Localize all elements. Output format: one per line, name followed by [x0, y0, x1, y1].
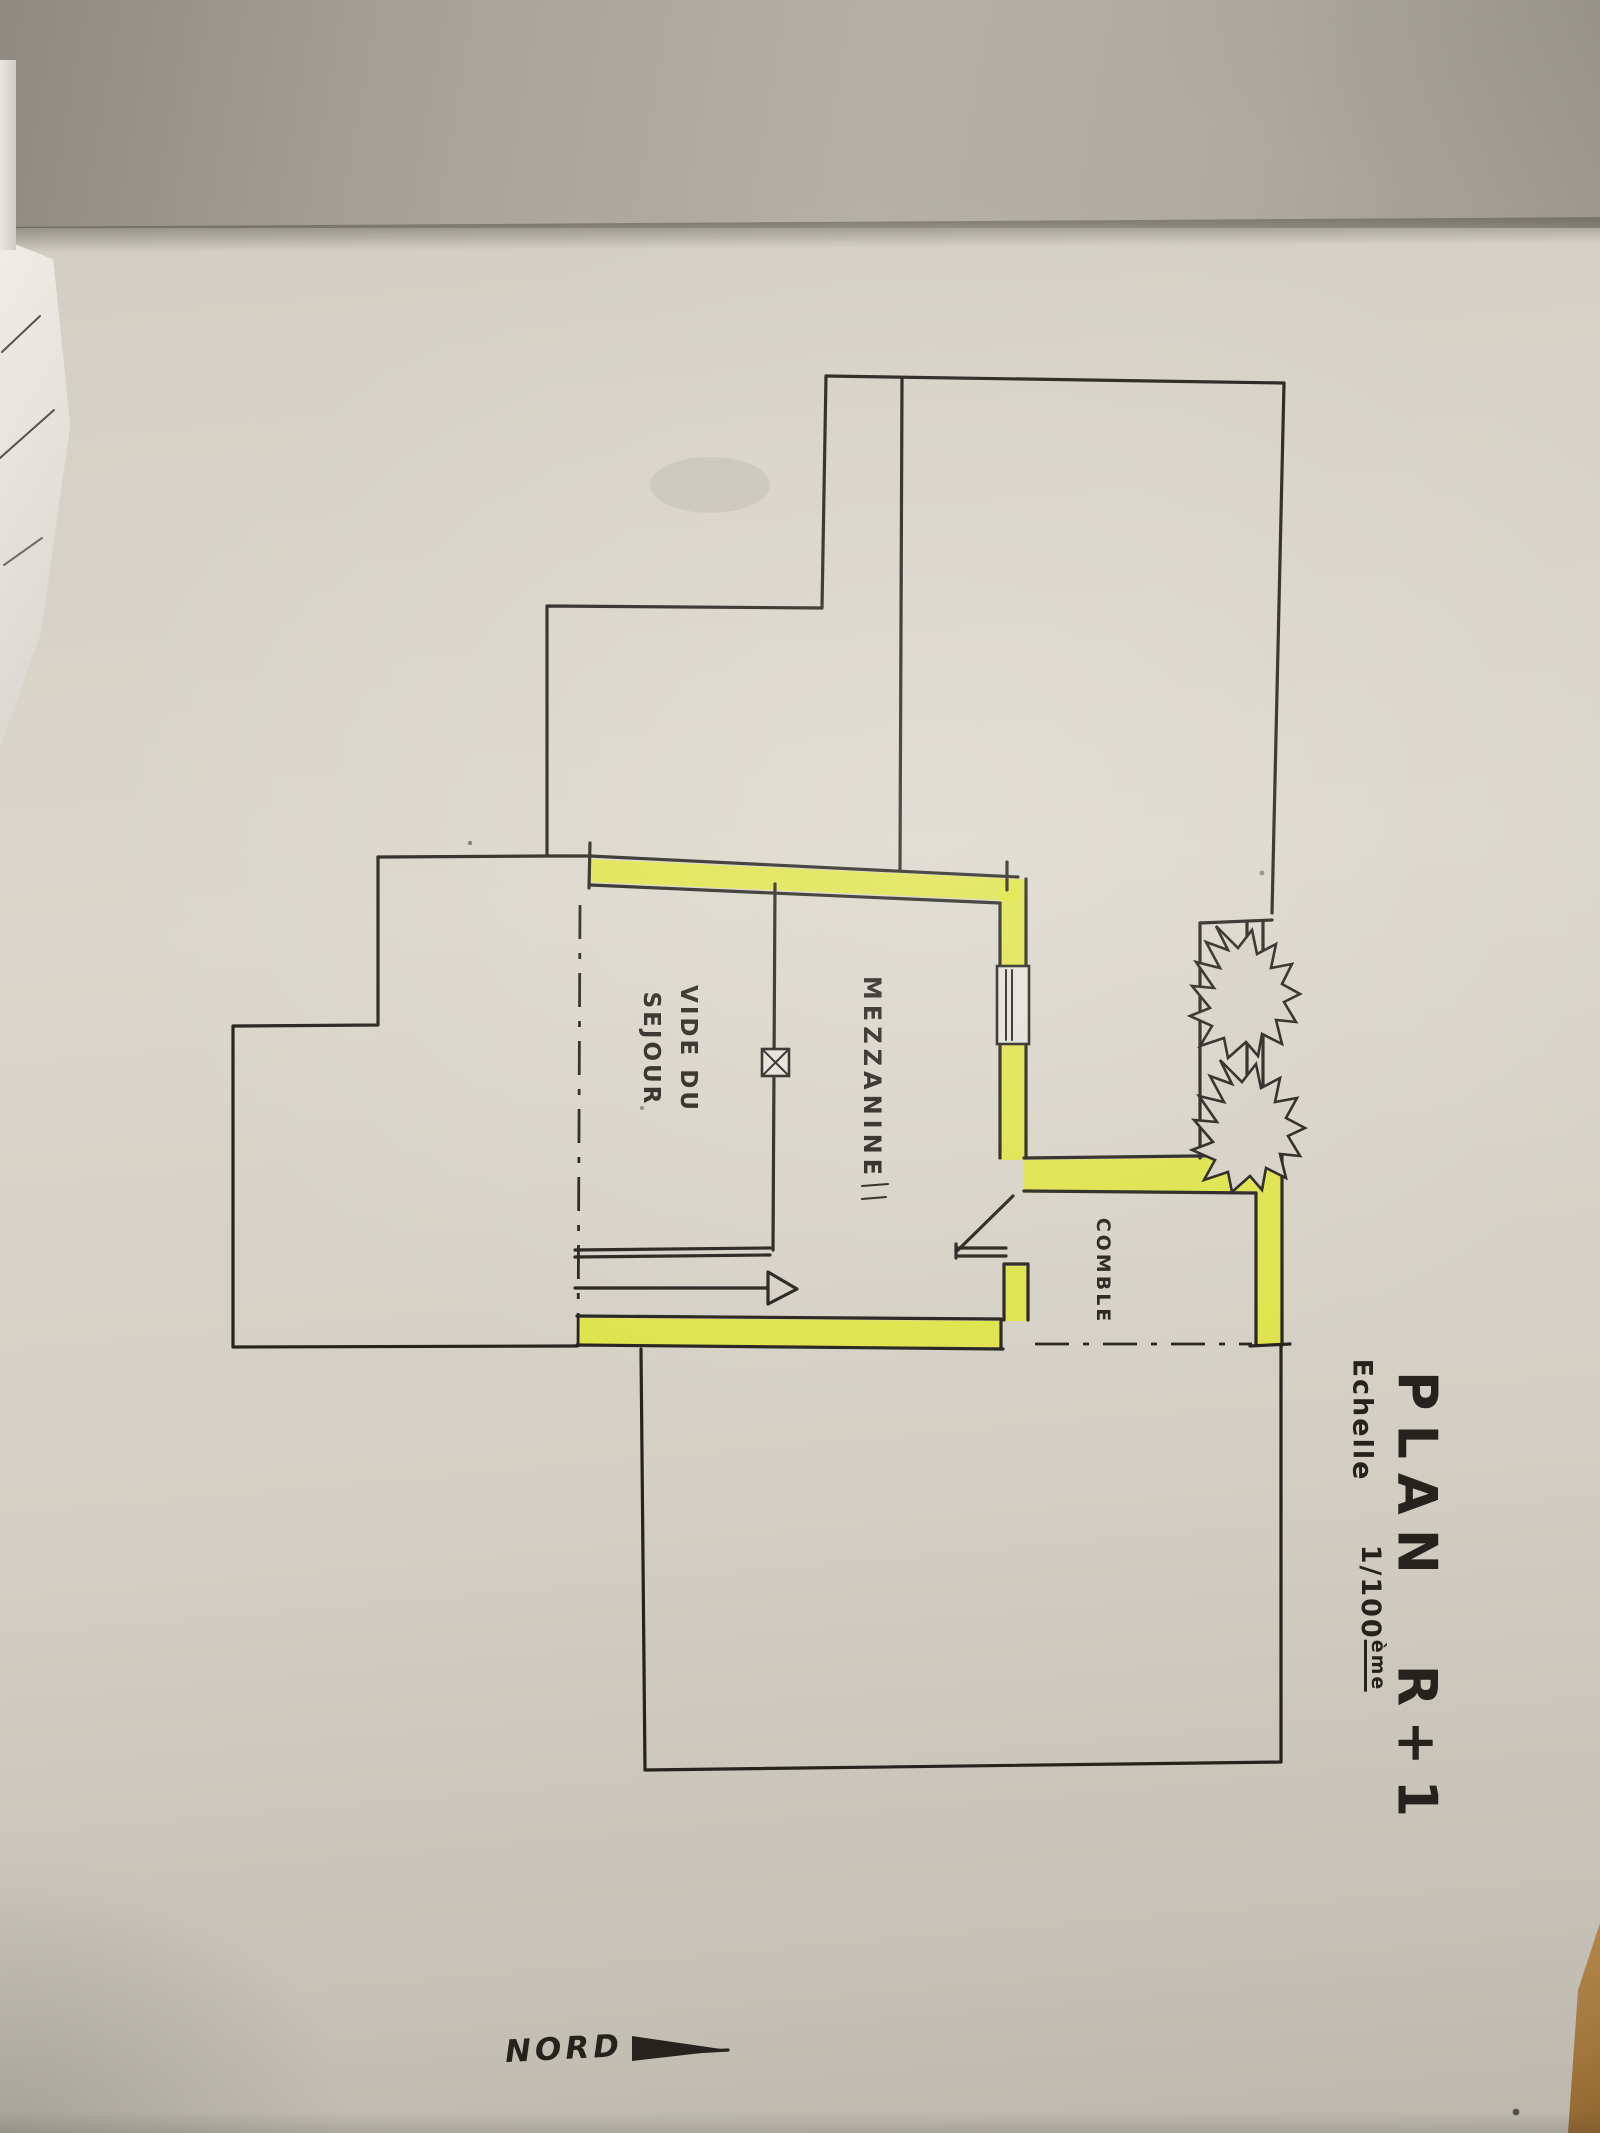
scale-ratio: 1/100: [1355, 1545, 1386, 1640]
window-icon: [997, 966, 1029, 1044]
paper-specks: [468, 457, 1520, 2115]
scale-label: Echelle: [1347, 1359, 1378, 1482]
text-underline-marks: [862, 1184, 888, 1199]
room-label-mezzanine: MEZZANINE: [858, 976, 886, 1180]
plan-title: PLAN R+1: [1386, 1371, 1449, 1831]
column-x-marker-icon: [762, 1049, 789, 1076]
vide-line1: VIDE DU: [669, 985, 706, 1113]
scale-value: 1/100ème: [1355, 1545, 1389, 1692]
stair-direction-arrow-icon: [575, 1272, 797, 1304]
scale-suffix: ème: [1364, 1640, 1389, 1692]
vide-line2: SEJOUR: [632, 985, 669, 1113]
paper-edge-marks: [0, 316, 54, 565]
floor-plan-drawing: [0, 0, 1600, 2133]
floor-plan-photo: PLAN R+1 Echelle 1/100ème MEZZANINE VIDE…: [0, 0, 1600, 2133]
north-arrow-icon: [632, 2036, 728, 2061]
room-label-vide-du-sejour: VIDE DU SEJOUR: [632, 985, 706, 1113]
compass-label: NORD: [504, 2028, 624, 2070]
room-label-comble: COMBLE: [1092, 1218, 1114, 1325]
photo-edge-shade: [0, 2111, 1600, 2133]
dash-dot-line: [578, 905, 1252, 1352]
